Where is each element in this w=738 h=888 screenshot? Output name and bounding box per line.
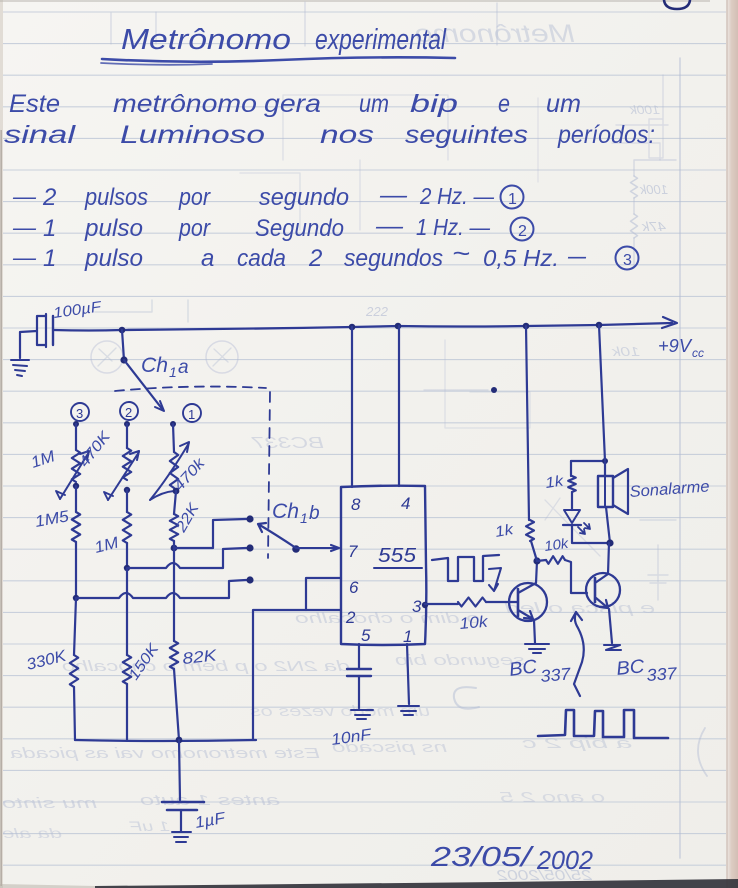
svg-text:metrônomo: metrônomo: [113, 90, 257, 118]
svg-text:bip: bip: [410, 90, 458, 118]
svg-text:1: 1: [508, 191, 517, 208]
svg-text:47k: 47k: [640, 219, 666, 234]
svg-text:3: 3: [623, 252, 632, 269]
svg-text:3: 3: [412, 597, 422, 616]
svg-text:—: —: [567, 243, 587, 270]
svg-text:+9V: +9V: [658, 336, 693, 356]
svg-text:segundo bip: segundo bip: [395, 652, 525, 669]
svg-text:—: —: [375, 213, 404, 240]
svg-text:um: um: [359, 90, 389, 118]
svg-text:1: 1: [169, 364, 177, 380]
svg-text:~: ~: [452, 238, 470, 268]
svg-text:por: por: [178, 215, 211, 242]
svg-text:100k: 100k: [639, 182, 668, 197]
svg-text:2 Hz. —: 2 Hz. —: [419, 183, 495, 209]
svg-text:—: —: [379, 182, 408, 209]
svg-text:5: 5: [361, 626, 371, 645]
svg-text:337: 337: [540, 664, 572, 686]
svg-text:2: 2: [42, 184, 56, 211]
svg-text:experimental: experimental: [315, 24, 447, 56]
svg-text:2: 2: [518, 223, 527, 240]
svg-text:por: por: [178, 184, 211, 211]
svg-text:Metrônomo: Metrônomo: [121, 24, 291, 56]
svg-text:antes 1 auto: antes 1 auto: [140, 792, 280, 809]
svg-text:BC: BC: [615, 656, 645, 680]
svg-text:2: 2: [308, 245, 322, 272]
svg-text:Este: Este: [9, 90, 60, 118]
svg-text:0,5 Hz.: 0,5 Hz.: [483, 245, 559, 271]
svg-text:pulso: pulso: [84, 215, 143, 242]
svg-text:a: a: [201, 245, 214, 272]
svg-text:nos: nos: [320, 121, 374, 149]
svg-text:e: e: [498, 90, 510, 118]
svg-text:sinal: sinal: [4, 121, 77, 149]
svg-text:—: —: [12, 245, 37, 270]
svg-text:1 Hz. —: 1 Hz. —: [416, 214, 491, 240]
svg-text:2: 2: [125, 405, 132, 420]
svg-text:8: 8: [351, 495, 361, 514]
svg-text:1 uF: 1 uF: [128, 818, 170, 834]
svg-text:1: 1: [43, 215, 56, 242]
svg-text:BC337: BC337: [250, 435, 324, 452]
svg-text:1: 1: [43, 245, 56, 272]
svg-text:cc: cc: [692, 346, 704, 360]
svg-text:BC: BC: [508, 656, 539, 681]
svg-text:seguintes: seguintes: [405, 121, 528, 149]
svg-text:Luminoso: Luminoso: [120, 121, 265, 149]
svg-text:cada: cada: [237, 245, 286, 272]
svg-text:23/05/: 23/05/: [430, 841, 535, 872]
svg-text:um: um: [546, 90, 581, 118]
svg-text:o dim o chocalho: o dim o chocalho: [295, 610, 480, 627]
svg-text:a: a: [178, 357, 189, 378]
svg-text:gera: gera: [264, 90, 321, 118]
svg-text:Ch: Ch: [272, 500, 299, 523]
svg-text:7: 7: [348, 542, 358, 561]
svg-text:—: —: [12, 215, 37, 240]
svg-text:10k: 10k: [610, 344, 640, 359]
svg-text:2: 2: [345, 608, 356, 627]
svg-text:337: 337: [646, 664, 678, 685]
svg-text:—: —: [12, 184, 37, 209]
svg-text:o ano 2 5: o ano 2 5: [499, 789, 605, 806]
svg-text:b: b: [309, 503, 320, 524]
svg-text:1: 1: [403, 627, 412, 646]
svg-text:Segundo: Segundo: [255, 215, 344, 242]
svg-text:Este metronomo vai as picada: Este metronomo vai as picada: [10, 745, 320, 762]
svg-text:555: 555: [378, 545, 417, 567]
svg-text:mu sinto: mu sinto: [2, 795, 97, 812]
svg-text:pulso: pulso: [84, 245, 143, 272]
svg-text:3: 3: [76, 406, 83, 421]
svg-text:4: 4: [401, 494, 410, 513]
svg-text:6: 6: [349, 578, 359, 597]
svg-text:100k: 100k: [629, 103, 660, 117]
svg-text:da ale: da ale: [2, 825, 62, 841]
svg-text:segundo: segundo: [259, 184, 349, 211]
svg-text:1: 1: [188, 407, 195, 422]
svg-text:1: 1: [300, 510, 308, 526]
svg-text:222: 222: [365, 304, 389, 319]
svg-text:2002: 2002: [536, 845, 593, 875]
svg-text:10k: 10k: [459, 614, 489, 633]
svg-text:Ch: Ch: [141, 354, 168, 377]
svg-text:segundos: segundos: [344, 245, 443, 272]
svg-text:pulsos: pulsos: [84, 184, 148, 211]
svg-text:períodos:: períodos:: [557, 121, 655, 149]
